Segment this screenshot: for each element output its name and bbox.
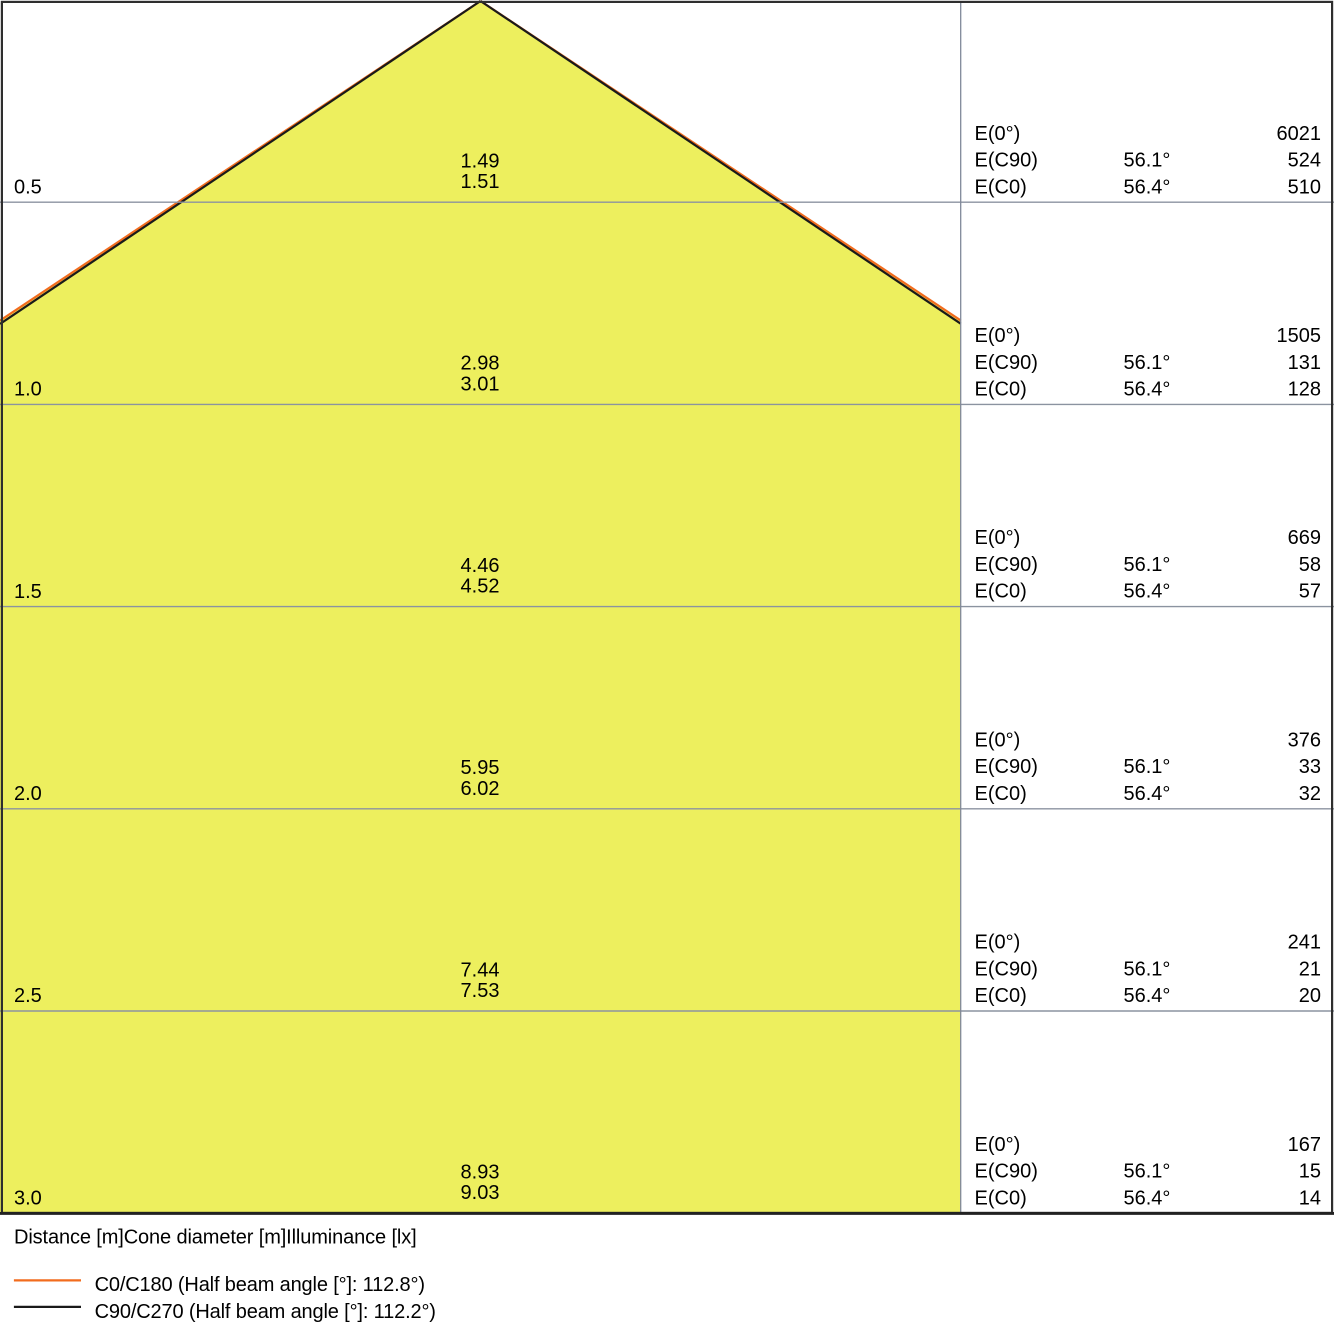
- svg-text:1.49: 1.49: [461, 151, 500, 173]
- svg-text:E(C0): E(C0): [975, 176, 1027, 198]
- svg-text:20: 20: [1299, 985, 1321, 1007]
- svg-text:56.1°: 56.1°: [1124, 756, 1171, 778]
- svg-text:56.4°: 56.4°: [1124, 1187, 1171, 1209]
- svg-text:15: 15: [1299, 1161, 1321, 1183]
- svg-text:E(0°): E(0°): [975, 123, 1021, 145]
- svg-text:E(0°): E(0°): [975, 1134, 1021, 1156]
- svg-text:2.5: 2.5: [14, 985, 42, 1007]
- svg-text:7.53: 7.53: [461, 980, 500, 1002]
- svg-text:Distance [m]Cone diameter [m]I: Distance [m]Cone diameter [m]Illuminance…: [14, 1227, 417, 1249]
- svg-text:E(C0): E(C0): [975, 379, 1027, 401]
- svg-text:56.1°: 56.1°: [1124, 958, 1171, 980]
- svg-text:56.1°: 56.1°: [1124, 150, 1171, 172]
- svg-text:E(C90): E(C90): [975, 554, 1038, 576]
- svg-text:E(C90): E(C90): [975, 352, 1038, 374]
- svg-text:56.1°: 56.1°: [1124, 1161, 1171, 1183]
- svg-text:E(C0): E(C0): [975, 783, 1027, 805]
- svg-text:524: 524: [1288, 150, 1321, 172]
- svg-text:14: 14: [1299, 1187, 1321, 1209]
- svg-text:33: 33: [1299, 756, 1321, 778]
- svg-text:56.4°: 56.4°: [1124, 379, 1171, 401]
- svg-text:5.95: 5.95: [461, 757, 500, 779]
- svg-text:3.0: 3.0: [14, 1187, 42, 1209]
- svg-text:376: 376: [1288, 729, 1321, 751]
- svg-text:6021: 6021: [1277, 123, 1322, 145]
- svg-text:57: 57: [1299, 581, 1321, 603]
- svg-text:241: 241: [1288, 932, 1321, 954]
- svg-text:E(0°): E(0°): [975, 729, 1021, 751]
- svg-text:E(C0): E(C0): [975, 1187, 1027, 1209]
- svg-text:9.03: 9.03: [461, 1182, 500, 1204]
- svg-text:56.4°: 56.4°: [1124, 783, 1171, 805]
- svg-text:2.0: 2.0: [14, 783, 42, 805]
- svg-text:56.4°: 56.4°: [1124, 581, 1171, 603]
- svg-text:4.52: 4.52: [461, 576, 500, 598]
- svg-text:E(C90): E(C90): [975, 150, 1038, 172]
- svg-text:C0/C180 (Half beam angle [°]:: C0/C180 (Half beam angle [°]: 112.8°): [95, 1274, 425, 1296]
- svg-text:E(C90): E(C90): [975, 1161, 1038, 1183]
- svg-text:1.0: 1.0: [14, 379, 42, 401]
- svg-text:21: 21: [1299, 958, 1321, 980]
- svg-text:E(0°): E(0°): [975, 325, 1021, 347]
- svg-text:7.44: 7.44: [461, 959, 500, 981]
- svg-text:128: 128: [1288, 379, 1321, 401]
- svg-text:8.93: 8.93: [461, 1162, 500, 1184]
- svg-text:2.98: 2.98: [461, 353, 500, 375]
- svg-text:167: 167: [1288, 1134, 1321, 1156]
- svg-text:E(0°): E(0°): [975, 527, 1021, 549]
- svg-text:32: 32: [1299, 783, 1321, 805]
- svg-text:E(0°): E(0°): [975, 932, 1021, 954]
- svg-text:C90/C270 (Half beam angle [°]:: C90/C270 (Half beam angle [°]: 112.2°): [95, 1301, 436, 1323]
- svg-text:1505: 1505: [1277, 325, 1322, 347]
- svg-text:4.46: 4.46: [461, 555, 500, 577]
- svg-text:E(C90): E(C90): [975, 756, 1038, 778]
- svg-text:510: 510: [1288, 176, 1321, 198]
- svg-text:669: 669: [1288, 527, 1321, 549]
- svg-text:56.4°: 56.4°: [1124, 176, 1171, 198]
- svg-text:E(C0): E(C0): [975, 581, 1027, 603]
- svg-text:0.5: 0.5: [14, 176, 42, 198]
- svg-text:56.1°: 56.1°: [1124, 554, 1171, 576]
- svg-text:1.51: 1.51: [461, 171, 500, 193]
- svg-text:6.02: 6.02: [461, 778, 500, 800]
- svg-text:1.5: 1.5: [14, 581, 42, 603]
- svg-text:131: 131: [1288, 352, 1321, 374]
- svg-text:56.4°: 56.4°: [1124, 985, 1171, 1007]
- svg-text:E(C0): E(C0): [975, 985, 1027, 1007]
- svg-text:58: 58: [1299, 554, 1321, 576]
- svg-text:3.01: 3.01: [461, 373, 500, 395]
- svg-text:56.1°: 56.1°: [1124, 352, 1171, 374]
- svg-text:E(C90): E(C90): [975, 958, 1038, 980]
